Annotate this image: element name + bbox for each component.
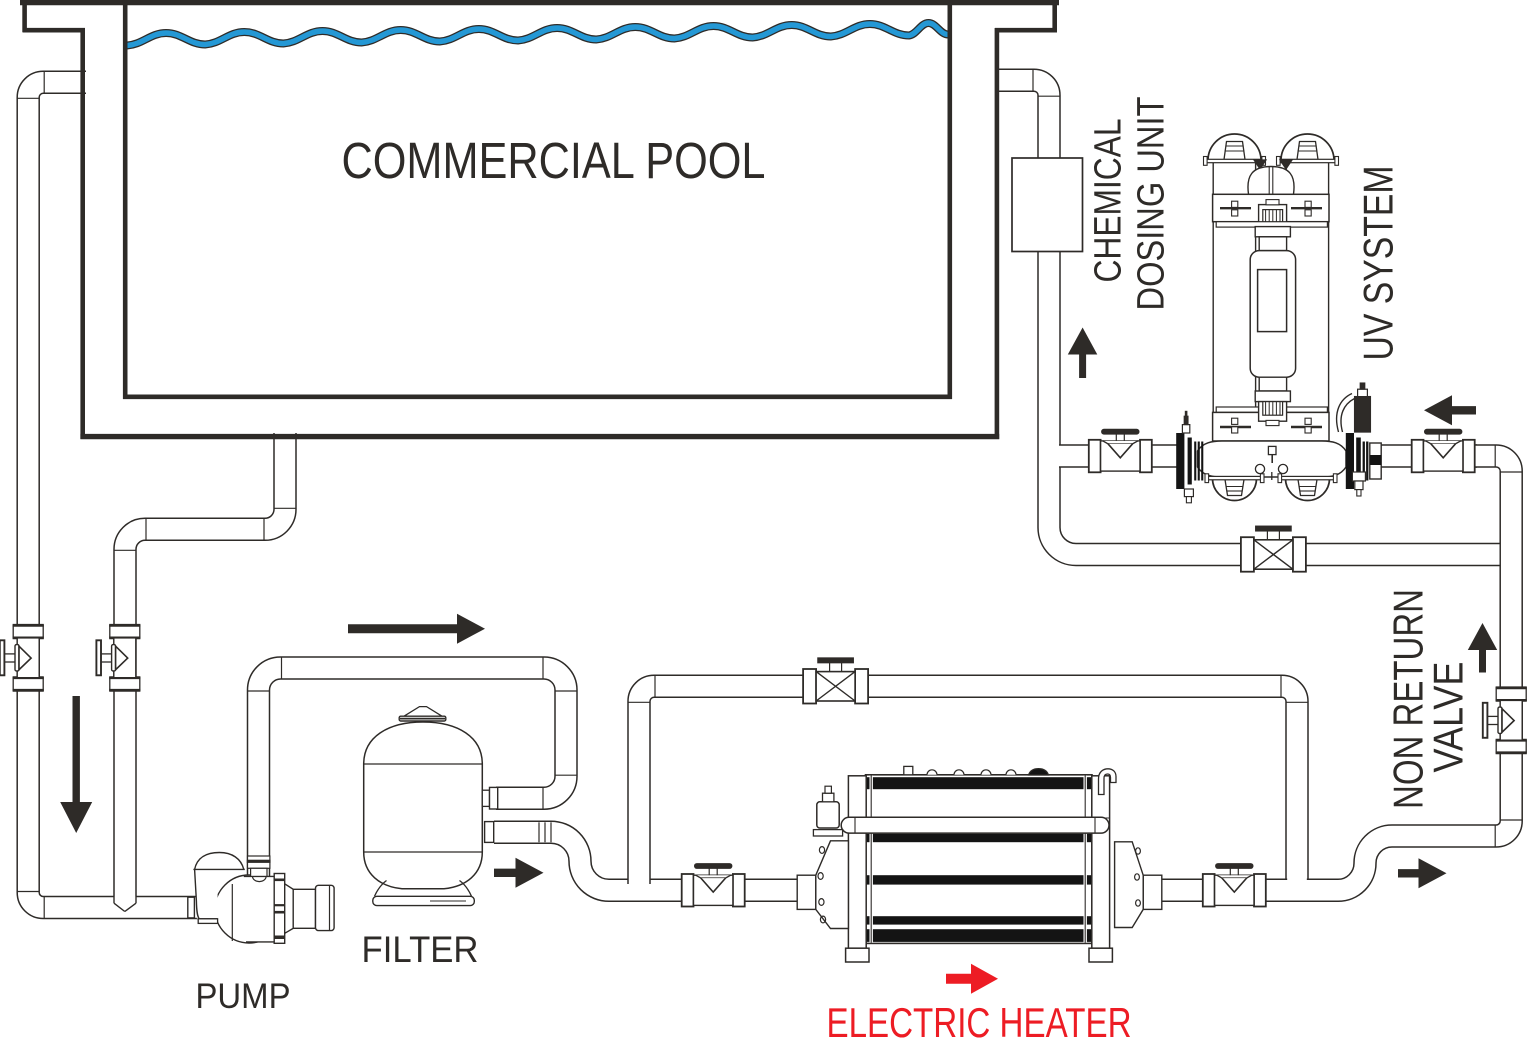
svg-text:DOSING UNIT: DOSING UNIT xyxy=(1131,97,1173,311)
svg-text:UV SYSTEM: UV SYSTEM xyxy=(1355,166,1402,361)
svg-text:VALVE: VALVE xyxy=(1425,662,1472,773)
svg-text:FILTER: FILTER xyxy=(362,929,479,970)
svg-text:PUMP: PUMP xyxy=(196,977,291,1016)
svg-text:CHEMICAL: CHEMICAL xyxy=(1088,119,1130,283)
svg-text:ELECTRIC HEATER: ELECTRIC HEATER xyxy=(827,999,1132,1046)
svg-text:COMMERCIAL POOL: COMMERCIAL POOL xyxy=(342,132,766,189)
